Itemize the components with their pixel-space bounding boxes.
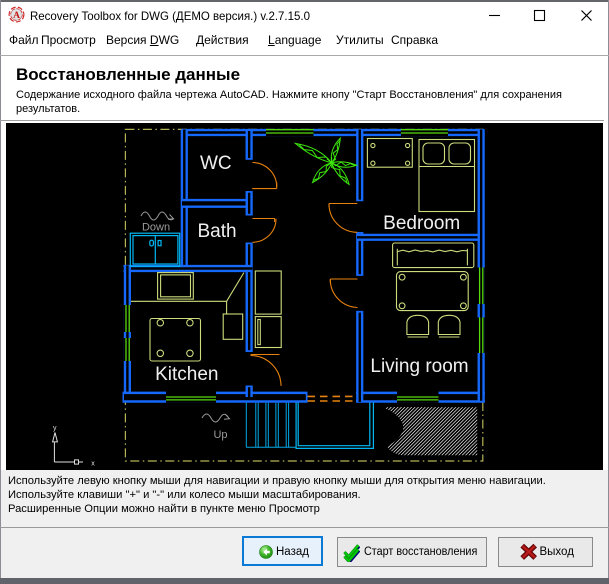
svg-text:x: x: [91, 461, 95, 468]
svg-text:Bath: Bath: [197, 221, 236, 242]
svg-text:A: A: [13, 11, 20, 21]
svg-text:Living room: Living room: [370, 356, 468, 377]
svg-text:y: y: [53, 425, 57, 432]
svg-text:Kitchen: Kitchen: [155, 364, 218, 385]
svg-text:Up: Up: [213, 429, 227, 441]
svg-text:Bedroom: Bedroom: [383, 213, 460, 234]
svg-text:WC: WC: [200, 153, 232, 174]
svg-text:Down: Down: [142, 222, 170, 234]
